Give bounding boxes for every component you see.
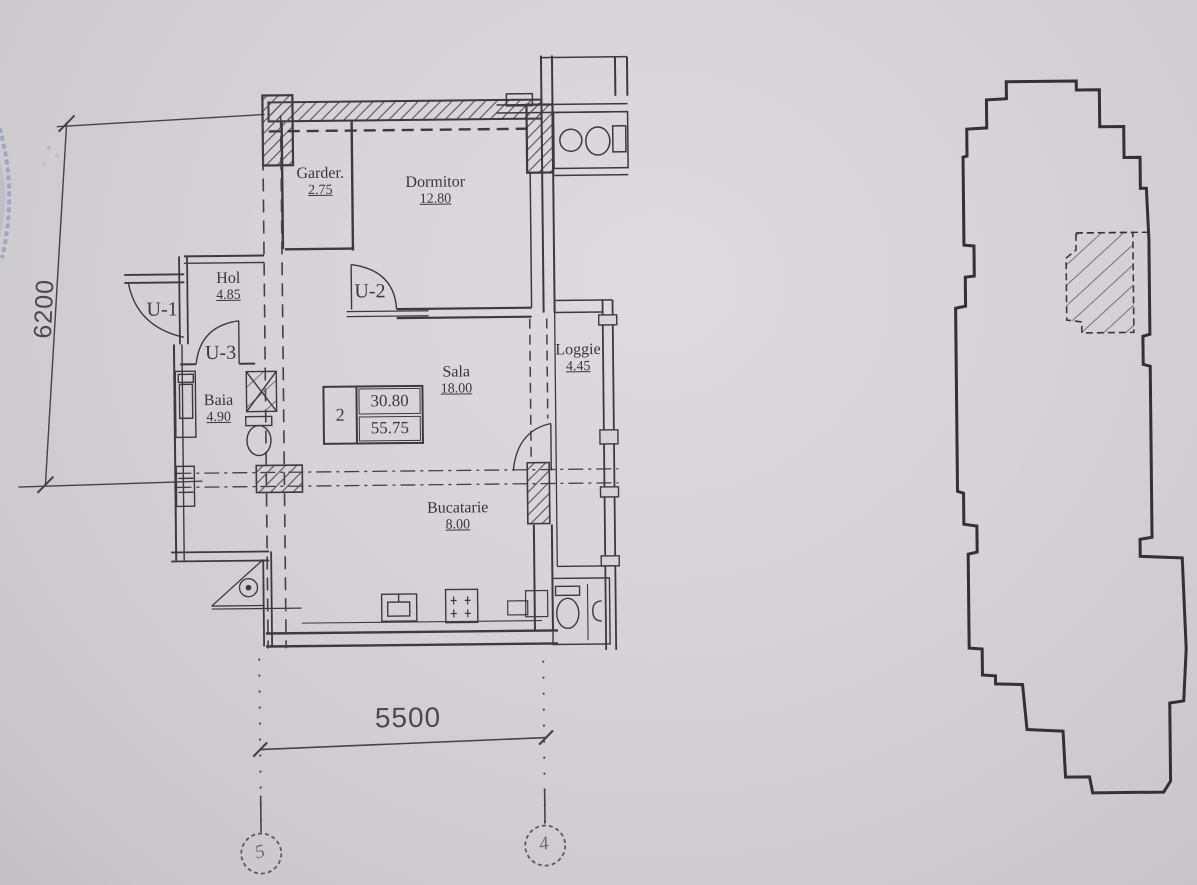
door-label-u3: U-3 [205,342,236,365]
kitchen-fixtures [382,589,548,624]
dimension-label-6200: 6200 [29,278,60,339]
stamp-mark [0,128,60,259]
scanned-floorplan-sheet: Garder. 2.75 Dormitor 12.80 Hol 4.85 Bai… [0,0,1197,885]
drawing-sheet: Garder. 2.75 Dormitor 12.80 Hol 4.85 Bai… [0,0,1197,885]
room-label-loggia: Loggie 4.45 [547,341,609,376]
room-label-hol: Hol 4.85 [203,270,253,305]
area-table-apartment-number: 2 [324,388,358,443]
room-label-baia: Baia 4.90 [191,392,245,427]
dimension-5500 [239,655,565,873]
area-table-living-area: 30.80 [358,388,420,414]
key-plan [953,80,1187,794]
neighbour-bath-bottom [552,578,610,645]
entrance-door [211,560,263,607]
key-plan-unit-hatch [1066,232,1134,333]
door-label-u2: U-2 [354,280,385,303]
room-label-sala: Sala 18.00 [427,363,485,398]
area-table-total-area: 55.75 [359,415,421,441]
room-label-garder: Garder. 2.75 [289,165,351,200]
shaft-with-x [246,371,276,411]
room-label-bucatarie: Bucatarie 8.00 [417,499,499,534]
neighbour-bath-top [496,93,628,176]
kitchen-sink [382,594,417,621]
toilet [246,416,272,455]
room-label-dormitor: Dormitor 12.80 [395,173,475,208]
door-label-u1: U-1 [146,298,177,321]
floorplan-linework [0,0,1197,885]
area-table: 2 30.80 55.75 [322,385,424,445]
kitchen-stove [446,589,478,622]
dimension-label-5500: 5500 [375,702,442,735]
key-plan-outline [953,80,1187,794]
